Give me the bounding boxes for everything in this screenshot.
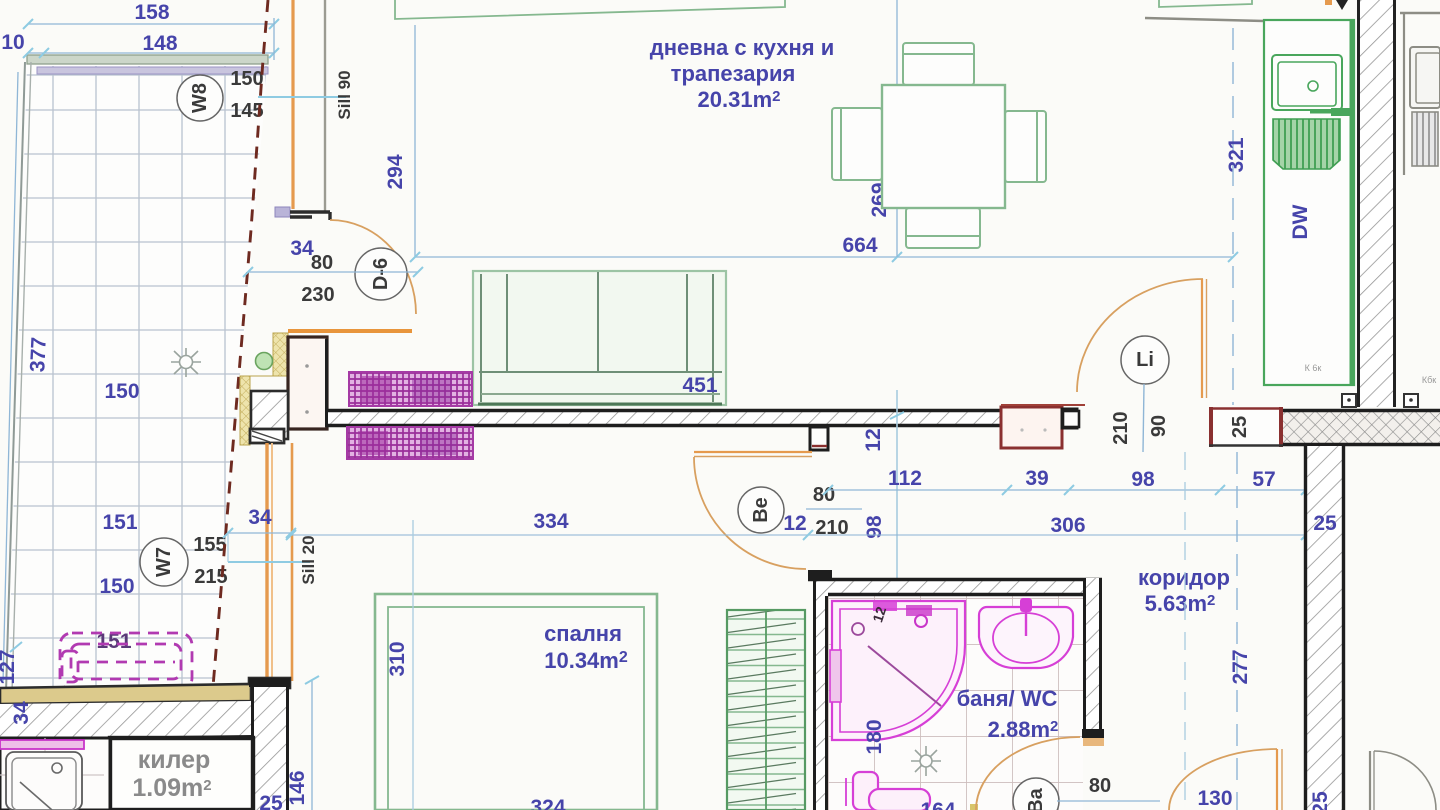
- svg-text:DW: DW: [1289, 204, 1312, 239]
- svg-text:306: 306: [1050, 514, 1085, 537]
- svg-text:112: 112: [888, 467, 922, 490]
- svg-text:коридор: коридор: [1138, 565, 1230, 590]
- svg-text:321: 321: [1225, 137, 1248, 172]
- svg-text:25: 25: [1309, 791, 1332, 810]
- svg-text:килер: килер: [138, 746, 211, 774]
- svg-text:34: 34: [248, 506, 272, 529]
- svg-text:20.31m2: 20.31m2: [698, 87, 781, 112]
- svg-text:D-6: D-6: [370, 258, 392, 290]
- svg-text:Кбк: Кбк: [1422, 375, 1436, 385]
- svg-text:150: 150: [104, 380, 139, 403]
- svg-text:155: 155: [193, 534, 226, 556]
- svg-text:164: 164: [920, 799, 955, 810]
- svg-text:W7: W7: [153, 547, 175, 577]
- svg-text:25: 25: [1229, 416, 1251, 438]
- svg-text:451: 451: [682, 374, 717, 397]
- svg-text:дневна с кухня и: дневна с кухня и: [650, 35, 835, 60]
- svg-text:151: 151: [102, 511, 137, 534]
- svg-text:трапезария: трапезария: [671, 61, 796, 86]
- svg-text:150: 150: [230, 68, 263, 90]
- svg-text:12: 12: [862, 428, 885, 451]
- svg-text:127: 127: [0, 649, 19, 684]
- svg-text:277: 277: [1229, 649, 1252, 684]
- svg-text:664: 664: [842, 234, 877, 257]
- svg-text:Sill 90: Sill 90: [335, 70, 354, 119]
- svg-text:80: 80: [311, 252, 333, 274]
- svg-text:230: 230: [301, 284, 334, 306]
- svg-text:80: 80: [1089, 775, 1111, 797]
- svg-text:150: 150: [99, 575, 134, 598]
- svg-text:324: 324: [530, 796, 565, 810]
- svg-text:148: 148: [142, 32, 177, 55]
- svg-text:39: 39: [1025, 467, 1048, 490]
- svg-text:W8: W8: [189, 83, 211, 113]
- svg-text:130: 130: [1197, 787, 1232, 810]
- svg-text:334: 334: [533, 510, 568, 533]
- svg-text:377: 377: [26, 337, 51, 373]
- svg-text:спалня: спалня: [544, 621, 622, 646]
- svg-text:210: 210: [815, 517, 848, 539]
- svg-text:К 6к: К 6к: [1305, 363, 1322, 373]
- svg-text:Sill 20: Sill 20: [299, 535, 318, 584]
- svg-text:Ba: Ba: [1025, 787, 1047, 810]
- svg-text:210: 210: [1110, 411, 1132, 444]
- svg-text:90: 90: [1148, 415, 1170, 437]
- svg-text:57: 57: [1252, 468, 1275, 491]
- svg-text:158: 158: [134, 1, 169, 24]
- svg-text:2.88m2: 2.88m2: [988, 717, 1059, 742]
- svg-text:180: 180: [863, 719, 886, 754]
- svg-text:5.63m2: 5.63m2: [1145, 591, 1216, 616]
- svg-text:12: 12: [783, 512, 806, 535]
- svg-text:146: 146: [286, 770, 309, 805]
- svg-text:25: 25: [1313, 512, 1337, 535]
- svg-text:98: 98: [1131, 468, 1155, 491]
- svg-text:10: 10: [1, 31, 24, 54]
- svg-text:310: 310: [386, 641, 409, 676]
- svg-text:25: 25: [259, 792, 283, 810]
- svg-text:10.34m2: 10.34m2: [544, 648, 628, 673]
- svg-text:Li: Li: [1136, 349, 1154, 371]
- svg-text:Be: Be: [750, 497, 772, 523]
- svg-text:баня/ WC: баня/ WC: [957, 686, 1058, 711]
- svg-text:34: 34: [10, 701, 33, 725]
- svg-text:294: 294: [384, 154, 407, 189]
- svg-text:1.09m2: 1.09m2: [132, 774, 211, 802]
